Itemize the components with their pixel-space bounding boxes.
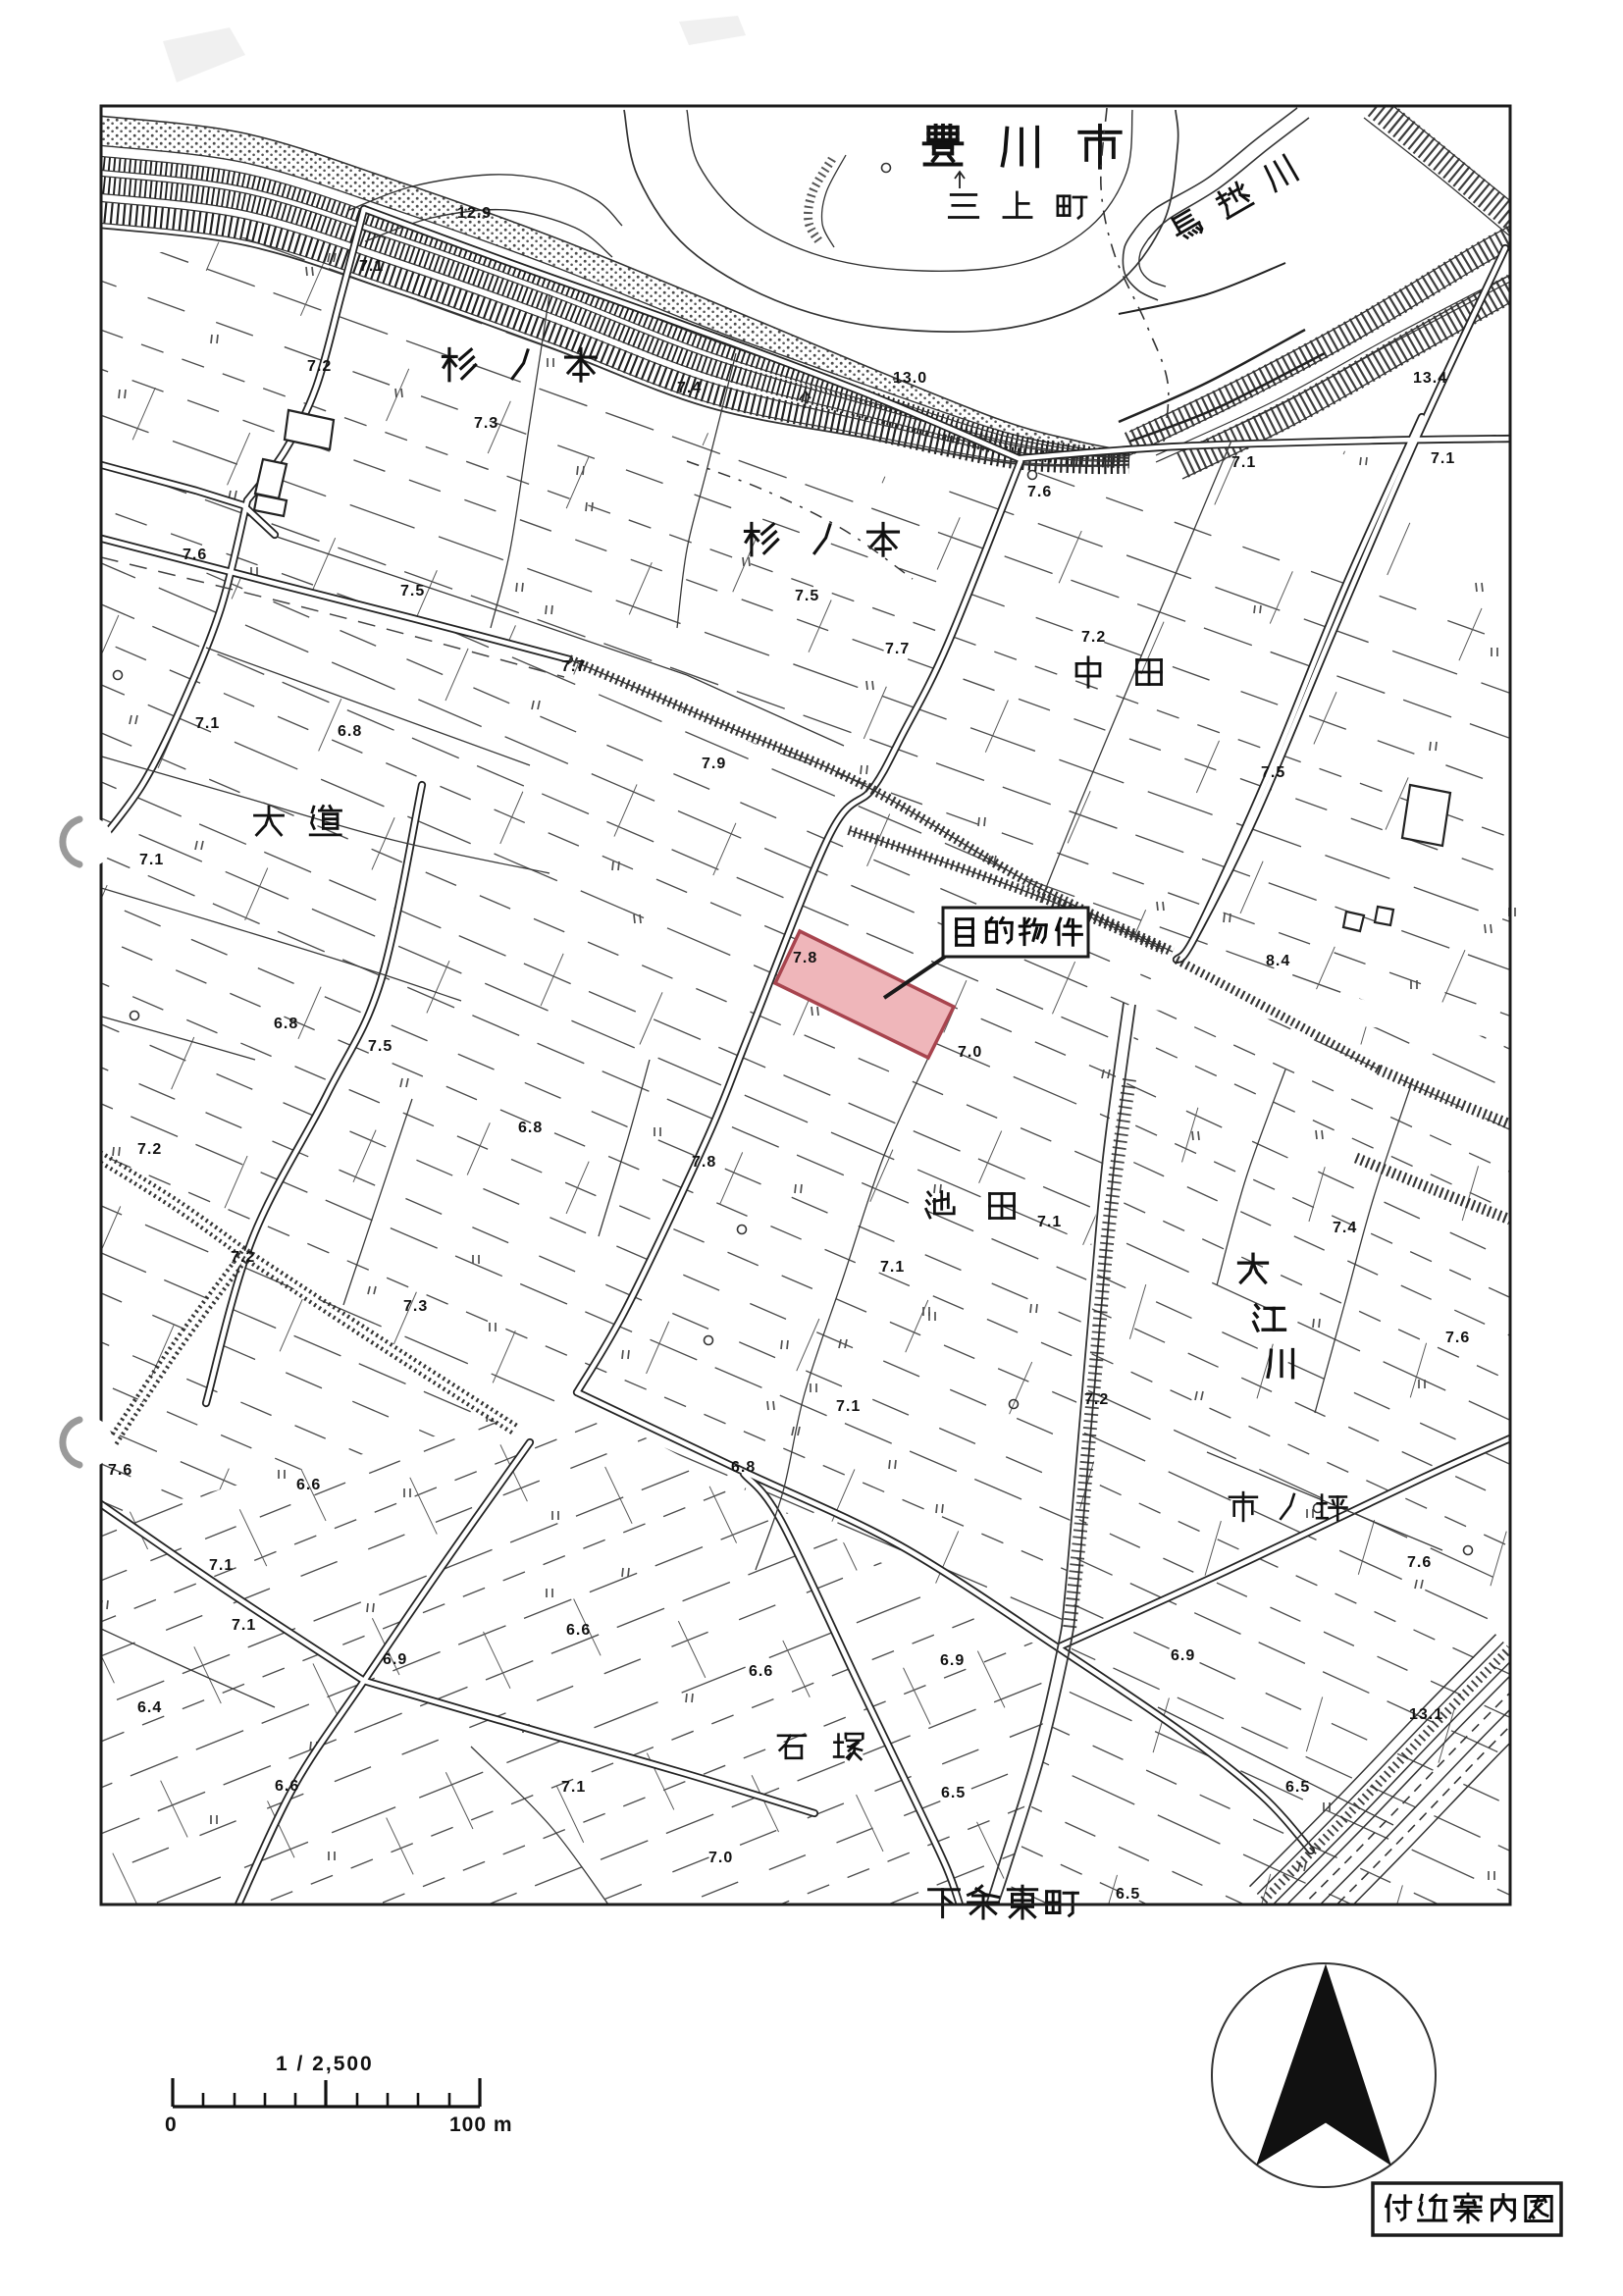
svg-text:13.0: 13.0 xyxy=(893,370,927,387)
svg-text:7.1: 7.1 xyxy=(359,258,384,275)
svg-text:7.8: 7.8 xyxy=(793,950,817,966)
svg-text:100 m: 100 m xyxy=(449,2113,513,2136)
svg-text:7.0: 7.0 xyxy=(708,1850,733,1866)
svg-text:7.4: 7.4 xyxy=(677,380,702,396)
svg-text:7.9: 7.9 xyxy=(702,756,726,772)
svg-text:7.7: 7.7 xyxy=(561,658,586,675)
svg-text:7.5: 7.5 xyxy=(400,583,425,600)
svg-text:7.6: 7.6 xyxy=(183,547,207,563)
svg-text:7.2: 7.2 xyxy=(1081,629,1106,646)
svg-text:7.6: 7.6 xyxy=(1445,1330,1470,1346)
svg-text:7.7: 7.7 xyxy=(885,641,910,657)
svg-text:7.3: 7.3 xyxy=(474,415,498,432)
svg-text:7.1: 7.1 xyxy=(1037,1214,1062,1230)
svg-text:7.0: 7.0 xyxy=(958,1044,982,1061)
svg-text:7.6: 7.6 xyxy=(108,1462,132,1479)
svg-text:7.4: 7.4 xyxy=(1333,1220,1357,1236)
svg-text:6.6: 6.6 xyxy=(749,1663,773,1680)
svg-text:6.9: 6.9 xyxy=(940,1652,965,1669)
svg-text:6.8: 6.8 xyxy=(518,1120,543,1136)
svg-text:7.5: 7.5 xyxy=(1261,764,1285,781)
svg-text:7.1: 7.1 xyxy=(1231,454,1256,471)
svg-text:1 / 2,500: 1 / 2,500 xyxy=(276,2053,374,2075)
svg-text:7.1: 7.1 xyxy=(209,1557,234,1574)
svg-text:13.1: 13.1 xyxy=(1409,1706,1443,1723)
svg-text:7.5: 7.5 xyxy=(368,1038,393,1055)
svg-text:7.1: 7.1 xyxy=(836,1398,861,1415)
svg-text:7.2: 7.2 xyxy=(307,358,332,375)
svg-text:7.1: 7.1 xyxy=(195,715,220,732)
svg-text:6.5: 6.5 xyxy=(1116,1886,1140,1903)
svg-text:7.6: 7.6 xyxy=(1407,1554,1432,1571)
svg-text:7.5: 7.5 xyxy=(795,588,819,604)
svg-text:6.6: 6.6 xyxy=(275,1778,299,1795)
svg-text:7.1: 7.1 xyxy=(139,852,164,868)
svg-text:7.2: 7.2 xyxy=(1084,1391,1109,1408)
svg-text:6.8: 6.8 xyxy=(338,723,362,740)
svg-text:6.4: 6.4 xyxy=(137,1699,162,1716)
svg-text:6.6: 6.6 xyxy=(566,1622,591,1639)
svg-text:7.3: 7.3 xyxy=(403,1298,428,1315)
svg-text:6.6: 6.6 xyxy=(296,1477,321,1493)
svg-text:6.9: 6.9 xyxy=(383,1651,407,1668)
svg-text:12.9: 12.9 xyxy=(457,205,492,222)
svg-text:13.4: 13.4 xyxy=(1413,370,1447,387)
svg-text:0: 0 xyxy=(165,2113,177,2136)
svg-text:7.1: 7.1 xyxy=(561,1779,586,1796)
svg-text:7.8: 7.8 xyxy=(692,1154,716,1171)
svg-text:6.8: 6.8 xyxy=(731,1459,756,1476)
svg-text:7.1: 7.1 xyxy=(232,1617,256,1634)
svg-text:8.4: 8.4 xyxy=(1266,953,1290,969)
svg-text:7.1: 7.1 xyxy=(1431,450,1455,467)
svg-text:7.1: 7.1 xyxy=(880,1259,905,1276)
svg-text:6.9: 6.9 xyxy=(1171,1647,1195,1664)
svg-text:6.5: 6.5 xyxy=(1285,1779,1310,1796)
svg-text:7.2: 7.2 xyxy=(137,1141,162,1158)
svg-text:7.2: 7.2 xyxy=(231,1249,255,1266)
svg-text:6.5: 6.5 xyxy=(941,1785,966,1801)
svg-text:6.8: 6.8 xyxy=(274,1016,298,1032)
svg-text:7.6: 7.6 xyxy=(1027,484,1052,500)
